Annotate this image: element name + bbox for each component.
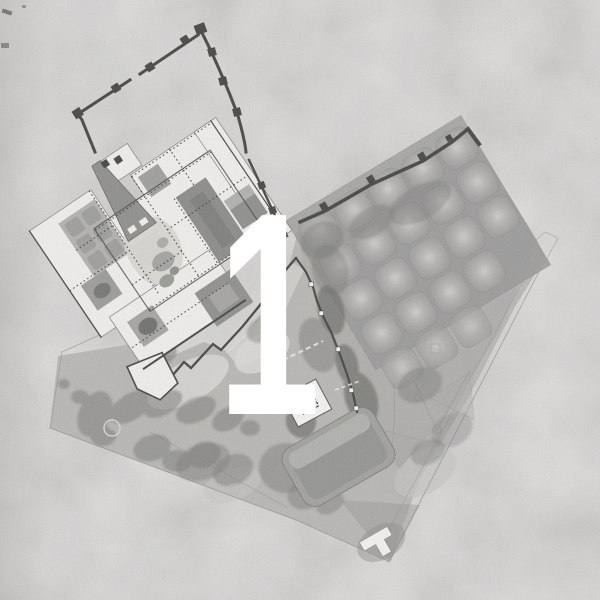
numeral-overlay: 1: [218, 153, 321, 476]
site-plan-canvas: 1: [0, 0, 600, 600]
numeral-label: 1: [218, 153, 321, 476]
map-figure: 1: [0, 0, 600, 600]
